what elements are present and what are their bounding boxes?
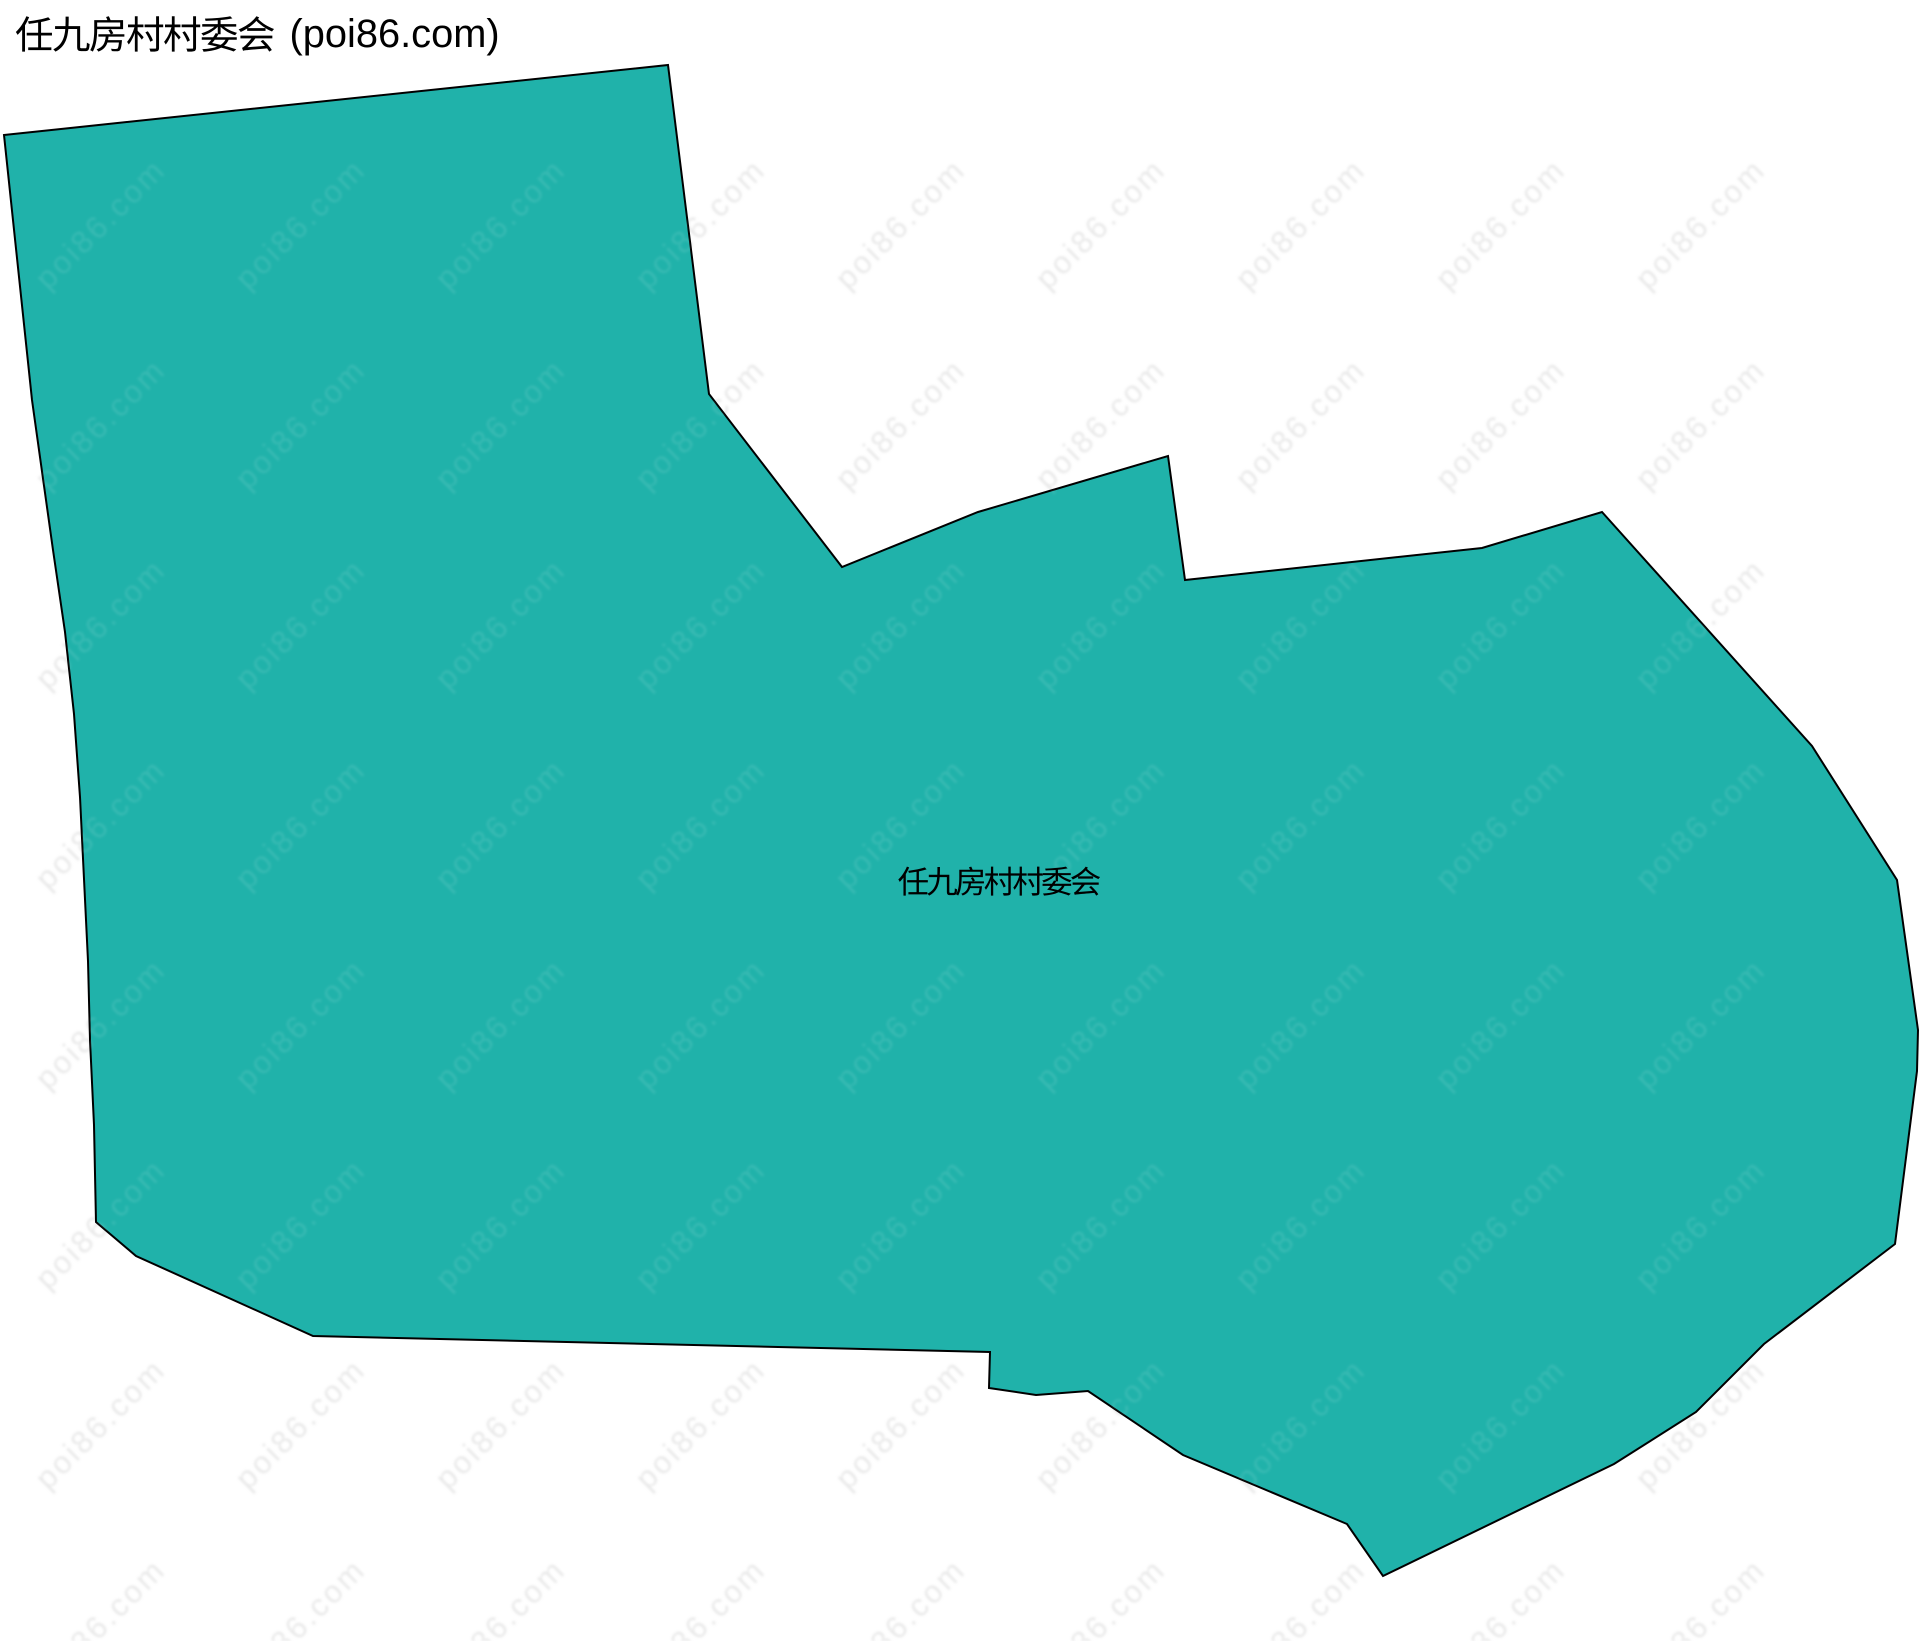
svg-text:(poi86.com): (poi86.com) <box>290 12 500 56</box>
